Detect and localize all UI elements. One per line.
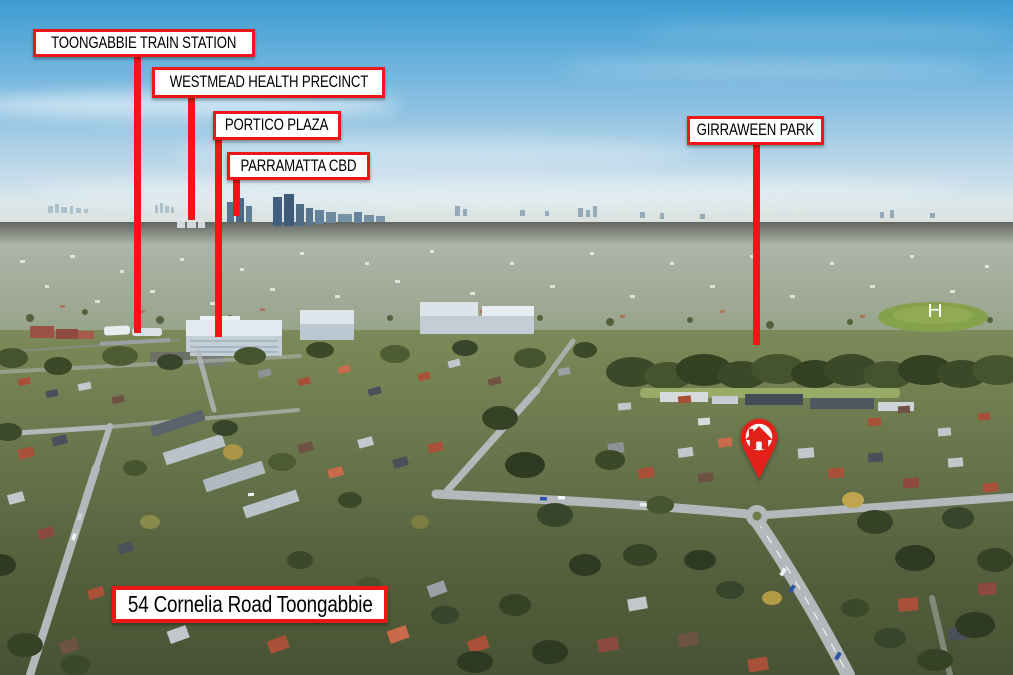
distant-skyline	[48, 194, 935, 228]
callout-toongabbie-train-station: TOONGABBIE TRAIN STATION	[33, 29, 255, 57]
callout-label: PORTICO PLAZA	[225, 117, 328, 134]
callout-portico-plaza: PORTICO PLAZA	[213, 111, 341, 140]
leader-girraween-park	[753, 143, 760, 345]
callout-label: WESTMEAD HEALTH PRECINCT	[169, 74, 367, 91]
leader-portico-plaza	[215, 138, 222, 337]
leader-parramatta-cbd	[233, 178, 240, 216]
girraween-park-area	[606, 302, 1013, 411]
callout-girraween-park: GIRRAWEEN PARK	[687, 116, 824, 145]
park-tree-band	[606, 354, 1013, 390]
leader-toongabbie-train-station	[134, 55, 141, 333]
callout-property-address: 54 Cornelia Road Toongabbie	[112, 586, 388, 623]
leader-westmead-health-precinct	[188, 96, 195, 220]
house-door	[756, 442, 762, 449]
aerial-photo	[0, 0, 1013, 675]
property-address-label: 54 Cornelia Road Toongabbie	[128, 593, 373, 616]
aerial-property-photo: TOONGABBIE TRAIN STATION WESTMEAD HEALTH…	[0, 0, 1013, 675]
callout-label: TOONGABBIE TRAIN STATION	[51, 35, 236, 52]
callout-westmead-health-precinct: WESTMEAD HEALTH PRECINCT	[152, 67, 385, 98]
callout-label: PARRAMATTA CBD	[241, 158, 357, 175]
callout-label: GIRRAWEEN PARK	[697, 122, 814, 139]
property-pin	[737, 416, 781, 482]
callout-parramatta-cbd: PARRAMATTA CBD	[227, 152, 370, 180]
